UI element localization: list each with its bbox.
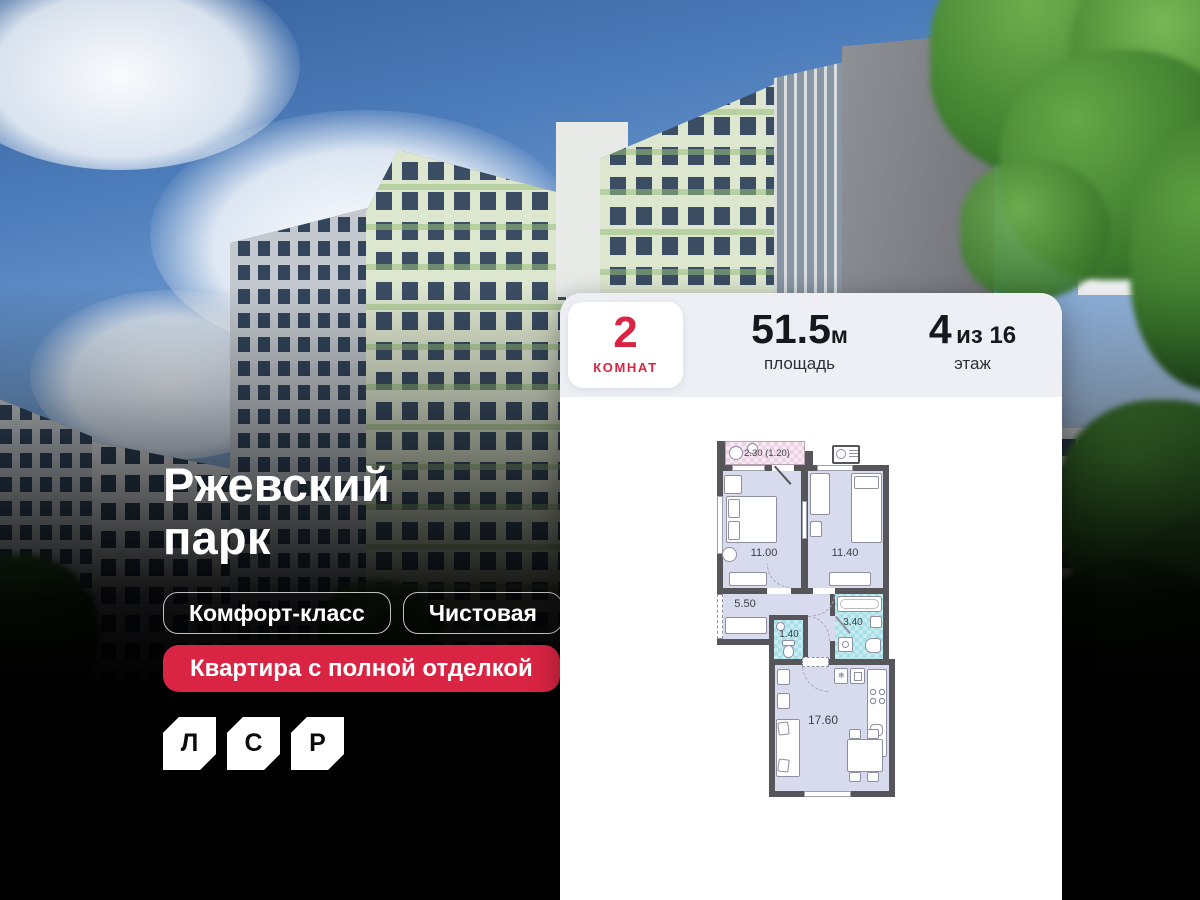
- highlight-badge: Квартира с полной отделкой: [163, 645, 560, 692]
- apartment-stats-header: 2 КОМНАТ 51.5м площадь 4 из 16 этаж: [560, 293, 1062, 397]
- dining-chair: [867, 729, 879, 739]
- wall-opening: [802, 657, 829, 667]
- oven: [850, 668, 865, 684]
- sofa-cushion: [777, 758, 790, 772]
- badge-row: Комфорт-класс Чистовая: [163, 592, 563, 634]
- toilet: [865, 638, 881, 653]
- apartment-card[interactable]: 2 КОМНАТ 51.5м площадь 4 из 16 этаж: [560, 293, 1062, 900]
- stove-burners: [869, 688, 886, 705]
- bedroom-1-label: 11.00: [739, 547, 789, 559]
- shelving: [777, 669, 790, 685]
- hallway-label: 5.50: [725, 598, 765, 610]
- banner: Ржевский парк Комфорт-класс Чистовая Ква…: [0, 0, 1200, 900]
- logo-tile-l: Л: [163, 717, 216, 770]
- floor-stat: 4 из 16 этаж: [895, 309, 1050, 374]
- bath-sink: [870, 616, 882, 628]
- project-title: Ржевский парк: [163, 458, 493, 564]
- shelving: [777, 693, 790, 709]
- hall-cabinet: [725, 617, 767, 634]
- shelf: [810, 521, 822, 537]
- side-table: [722, 547, 737, 562]
- balcony-label: 2.30 (1.20): [735, 448, 799, 459]
- bathtub: [837, 596, 882, 612]
- rooms-count: 2: [568, 311, 683, 355]
- wc-label: 1.40: [774, 629, 804, 640]
- badge-finishing: Чистовая: [403, 592, 563, 634]
- area-unit: м: [831, 322, 848, 348]
- toilet: [783, 645, 794, 658]
- floor-plan: ❄ 2.30 (1.20) 11.00 11.40 5.50 1.40 3.40…: [717, 441, 909, 801]
- floor-of-total: из 16: [956, 322, 1016, 349]
- dining-chair: [849, 772, 861, 782]
- dining-chair: [849, 729, 861, 739]
- pillow: [728, 499, 740, 518]
- rooms-chip: 2 КОМНАТ: [568, 302, 683, 388]
- area-stat: 51.5м площадь: [712, 309, 887, 374]
- area-label: площадь: [712, 354, 887, 374]
- fridge: ❄: [834, 668, 848, 684]
- dining-table: [847, 739, 883, 772]
- dining-chair: [867, 772, 879, 782]
- radiator: [829, 572, 871, 586]
- washing-machine: [838, 637, 853, 652]
- kitchen-label: 17.60: [797, 713, 849, 727]
- lsr-logo: Л С Р: [163, 717, 344, 770]
- ac-unit-icon: [832, 445, 860, 464]
- sofa-cushion: [777, 721, 790, 735]
- wardrobe: [810, 473, 830, 515]
- area-value: 51.5: [751, 306, 831, 352]
- logo-tile-s: С: [227, 717, 280, 770]
- dresser: [724, 475, 742, 494]
- pillow: [854, 476, 879, 489]
- bedroom-2-label: 11.40: [820, 547, 870, 559]
- pillow: [728, 521, 740, 540]
- rooms-label: КОМНАТ: [568, 360, 683, 375]
- radiator: [729, 572, 767, 586]
- floor-label: этаж: [895, 354, 1050, 374]
- floor-value: 4: [929, 306, 952, 352]
- bathroom-label: 3.40: [835, 617, 871, 628]
- badge-comfort-class: Комфорт-класс: [163, 592, 391, 634]
- logo-tile-r: Р: [291, 717, 344, 770]
